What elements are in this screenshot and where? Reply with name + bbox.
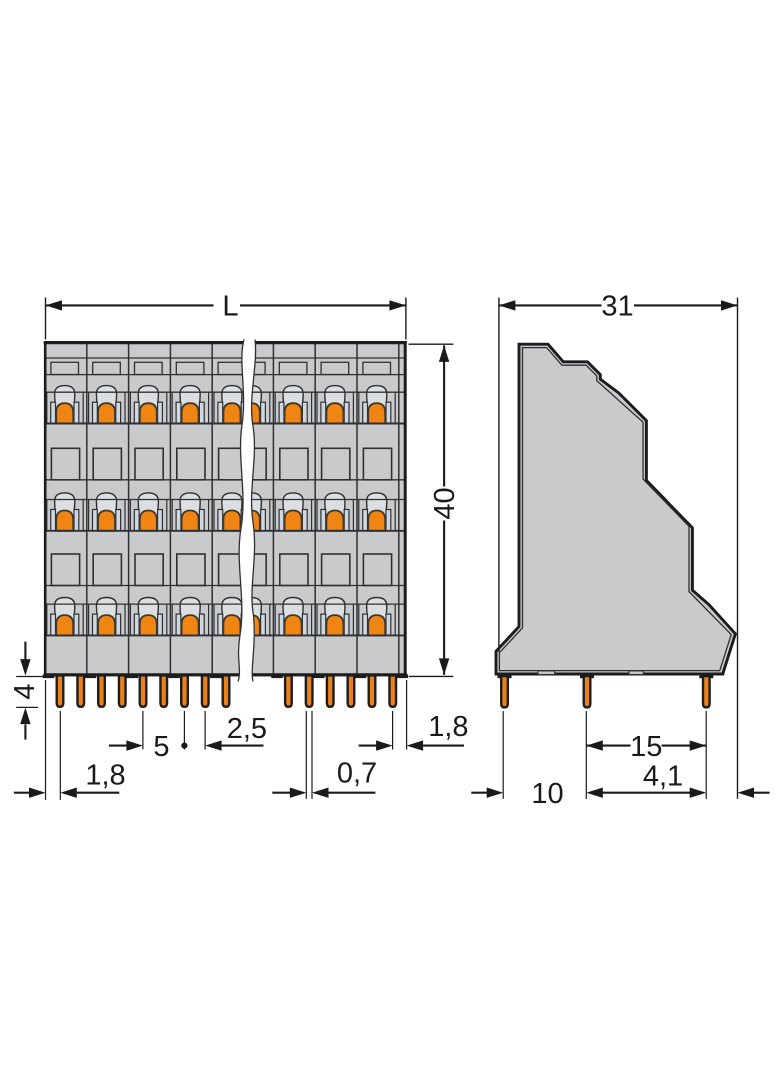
svg-text:4: 4 bbox=[9, 683, 41, 699]
svg-text:L: L bbox=[222, 291, 238, 323]
svg-text:2,5: 2,5 bbox=[227, 713, 267, 745]
svg-text:5: 5 bbox=[153, 731, 169, 763]
svg-text:1,8: 1,8 bbox=[85, 760, 125, 792]
svg-text:4,1: 4,1 bbox=[643, 761, 683, 793]
svg-text:10: 10 bbox=[531, 778, 563, 810]
svg-text:40: 40 bbox=[429, 487, 461, 519]
svg-text:1,8: 1,8 bbox=[428, 711, 468, 743]
svg-text:15: 15 bbox=[630, 731, 662, 763]
svg-text:0,7: 0,7 bbox=[337, 758, 377, 790]
svg-text:31: 31 bbox=[601, 291, 633, 323]
